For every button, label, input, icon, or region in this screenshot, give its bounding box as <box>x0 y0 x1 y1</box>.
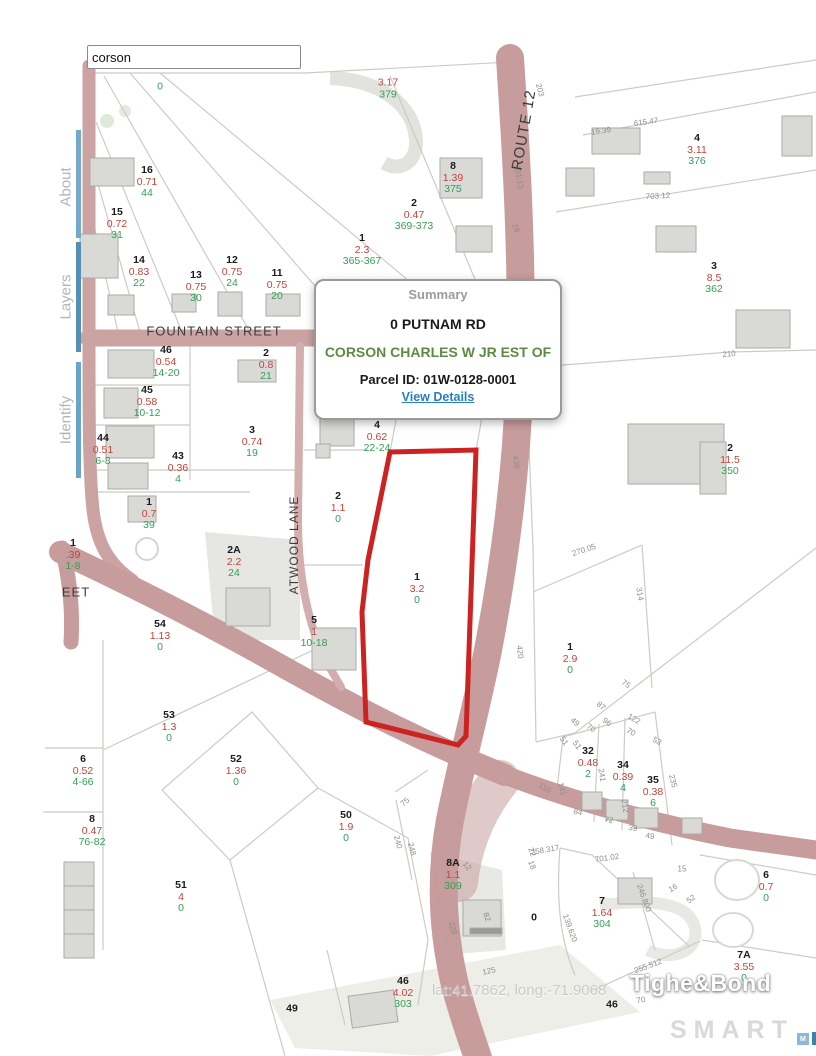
latlong-watermark: lat:41.7862, long:-71.9068 <box>432 982 606 999</box>
popup-parcel-id: Parcel ID: 01W-0128-0001 <box>360 372 517 387</box>
sidebar-tab-about[interactable]: About <box>58 167 75 206</box>
parcel-lines <box>43 60 816 1056</box>
map-canvas[interactable] <box>0 0 816 1056</box>
roads <box>60 58 816 1056</box>
sidebar-bar-about <box>76 130 81 238</box>
popup-owner: CORSON CHARLES W JR EST OF <box>325 344 551 360</box>
popup-title: Summary <box>408 287 467 302</box>
smart-logo-block-m: M <box>797 1033 809 1045</box>
smart-logo: SMART M L S <box>670 1016 816 1045</box>
map-application: 03.17379160.7144150.7231140.8322130.7530… <box>0 0 816 1056</box>
popup-address: 0 PUTNAM RD <box>390 316 486 332</box>
parcel-summary-popup: Summary 0 PUTNAM RD CORSON CHARLES W JR … <box>314 279 562 420</box>
selected-parcel-outline[interactable] <box>362 450 476 745</box>
search-input[interactable] <box>87 45 301 69</box>
sidebar-bar-identify <box>76 362 81 478</box>
smart-logo-block-l: L <box>812 1032 816 1045</box>
sidebar-tab-layers[interactable]: Layers <box>58 274 75 319</box>
smart-logo-word: SMART <box>670 1016 794 1045</box>
view-details-link[interactable]: View Details <box>402 390 475 404</box>
tighe-bond-watermark: Tighe&Bond <box>630 970 771 997</box>
sidebar-bar-layers <box>76 242 81 352</box>
sidebar-tab-identify[interactable]: Identify <box>58 396 75 444</box>
